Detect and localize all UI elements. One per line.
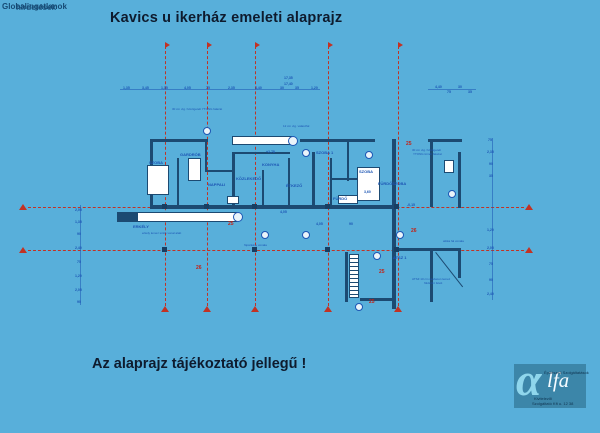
axis-line-vertical — [207, 46, 208, 306]
wall-segment — [330, 178, 360, 180]
disclaimer-note: Az alaprajz tájékoztató jellegű ! — [92, 356, 306, 372]
balcony-slab — [232, 136, 292, 145]
wall-segment — [392, 139, 396, 309]
red-axis-number: 25 — [379, 269, 385, 275]
dimension-label: +2,78 — [266, 150, 275, 154]
column-marker — [162, 204, 167, 209]
page-title: Kavics u ikerház emeleti alaprajz — [110, 10, 342, 26]
dimension-label: 35 — [468, 90, 472, 94]
room-label: FÜRDŐ — [333, 196, 347, 201]
wall-segment — [205, 139, 207, 171]
detail-circle-marker — [373, 252, 381, 260]
annotation-text: attika fal vonala — [443, 239, 464, 243]
column-marker — [325, 204, 330, 209]
column-marker — [252, 204, 257, 209]
wall-segment — [396, 248, 460, 251]
detail-circle-marker — [365, 151, 373, 159]
axis-flag-marker — [398, 42, 403, 48]
wall-segment — [312, 152, 315, 208]
stair-flight — [349, 254, 359, 298]
axis-triangle-marker — [203, 306, 211, 312]
detail-circle-marker — [302, 149, 310, 157]
wall-segment — [150, 205, 312, 209]
logo-small-top: Építészeti Szolgáltatások — [544, 370, 589, 375]
wall-segment — [430, 248, 433, 302]
red-axis-number: 26 — [411, 228, 417, 234]
dimension-label: 75 — [447, 90, 451, 94]
room-label: ERKÉLY — [133, 224, 149, 229]
axis-flag-marker — [207, 42, 212, 48]
annotation-text: erkély lemez széle vonal alatt — [142, 231, 181, 235]
wall-segment — [177, 158, 179, 206]
room-label: SZOBA — [359, 169, 373, 174]
axis-triangle-marker — [161, 306, 169, 312]
dimension-label: 17,40 — [284, 82, 293, 86]
axis-triangle-marker — [525, 204, 533, 210]
wall-segment — [428, 139, 462, 142]
white-room — [227, 196, 239, 204]
dimension-label: 90 — [349, 222, 353, 226]
column-marker — [204, 204, 209, 209]
dimension-chain-line — [120, 89, 320, 90]
dimension-label: 4,05 — [316, 222, 323, 226]
room-label: ÉTKEZŐ — [286, 183, 302, 188]
annotation-text: 12 cm vtg. válaszfal — [283, 124, 309, 128]
balcony-end-circle — [288, 136, 298, 146]
wall-segment — [347, 139, 349, 181]
room-label: KONYHA — [262, 162, 279, 167]
dimension-label: 4,05 — [280, 210, 287, 214]
column-marker — [394, 247, 399, 252]
room-label: FÜRDŐSZOBA — [378, 181, 406, 186]
axis-line-vertical — [398, 46, 399, 306]
room-label: NAPPALI — [208, 182, 225, 187]
axis-triangle-marker — [251, 306, 259, 312]
detail-circle-marker — [396, 231, 404, 239]
axis-line-vertical — [328, 46, 329, 306]
wall-segment — [458, 152, 461, 208]
balcony-end-circle — [233, 212, 243, 222]
room-label: ATSZ 1 — [393, 255, 406, 260]
wall-segment — [235, 152, 290, 154]
balcony-block — [118, 213, 138, 221]
white-room — [147, 165, 169, 195]
watermark-text-2: hirdetések — [16, 3, 56, 12]
wall-segment — [262, 170, 264, 208]
logo-small-line2: Szolgáltató Kft u. 12 38 — [532, 401, 573, 406]
wall-segment — [205, 170, 233, 172]
annotation-text: földszint felett — [424, 281, 442, 285]
detail-circle-marker — [203, 127, 211, 135]
room-label: GARDRÓB — [180, 152, 201, 157]
white-room — [444, 160, 454, 173]
dimension-chain-line — [80, 205, 81, 305]
annotation-text: 30 cm vtg. hőszigetelt YTONG falazat — [172, 107, 222, 111]
wall-segment — [330, 158, 332, 207]
wall-segment — [360, 298, 396, 301]
wall-segment — [345, 252, 348, 302]
detail-circle-marker — [448, 190, 456, 198]
watermark: Globalingatlanok hirdetések — [2, 2, 67, 11]
axis-triangle-marker — [19, 247, 27, 253]
room-label: SZOBA 1 — [316, 150, 333, 155]
room-label: SZOBA — [149, 160, 163, 165]
red-axis-number: 25 — [406, 141, 412, 147]
dimension-label: 17,35 — [284, 76, 293, 80]
dimension-chain-line — [492, 138, 493, 300]
room-label: KÖZLEKEDŐ — [236, 176, 261, 181]
column-marker — [325, 247, 330, 252]
red-axis-number: 26 — [196, 265, 202, 271]
detail-circle-marker — [355, 303, 363, 311]
wall-segment — [458, 248, 461, 278]
axis-triangle-marker — [324, 306, 332, 312]
axis-triangle-marker — [525, 247, 533, 253]
column-marker — [252, 247, 257, 252]
wall-segment — [150, 139, 208, 142]
white-room — [188, 158, 201, 181]
axis-flag-marker — [328, 42, 333, 48]
wall-segment — [300, 139, 375, 142]
axis-flag-marker — [165, 42, 170, 48]
red-axis-number: 25 — [369, 299, 375, 305]
axis-triangle-marker — [19, 204, 27, 210]
floorplan-page: Globalingatlanok hirdetések Kavics u ike… — [0, 0, 600, 433]
detail-circle-marker — [261, 231, 269, 239]
column-marker — [162, 247, 167, 252]
detail-circle-marker — [302, 231, 310, 239]
dimension-chain-line — [428, 89, 476, 90]
company-logo: α lfa Építészeti Szolgáltatások Kivitele… — [514, 364, 586, 408]
annotation-text: YTONG tömör falazat — [413, 152, 442, 156]
dimension-label: 3,60 — [364, 190, 371, 194]
red-axis-number: 25 — [228, 221, 234, 227]
annotation-text: főpárkány vonala — [244, 243, 267, 247]
axis-flag-marker — [255, 42, 260, 48]
dimension-label: -0,15 — [407, 203, 415, 207]
column-marker — [394, 204, 399, 209]
